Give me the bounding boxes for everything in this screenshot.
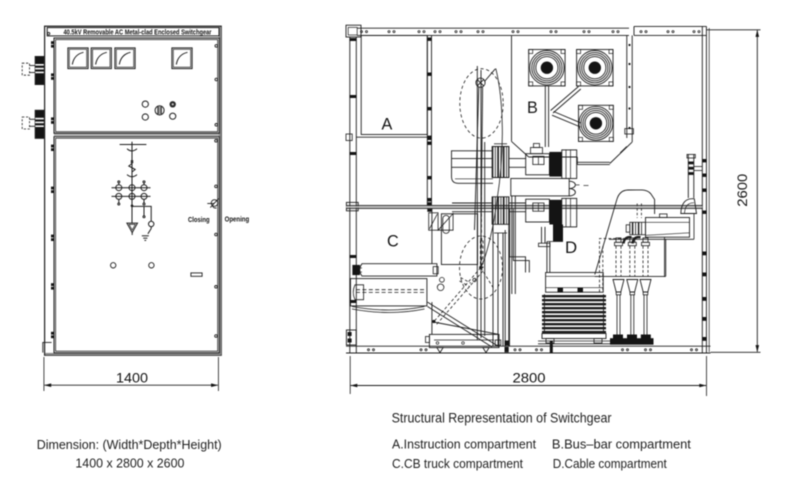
svg-text:C.CB truck compartment: C.CB truck compartment bbox=[392, 456, 523, 471]
svg-text:C: C bbox=[387, 233, 399, 251]
svg-text:D.Cable compartment: D.Cable compartment bbox=[553, 456, 667, 471]
svg-text:1400: 1400 bbox=[116, 370, 148, 386]
svg-text:B: B bbox=[527, 99, 538, 117]
svg-text:1400 x 2800 x 2600: 1400 x 2800 x 2600 bbox=[75, 456, 184, 471]
svg-text:2600: 2600 bbox=[735, 174, 751, 207]
svg-text:A.Instruction compartment: A.Instruction compartment bbox=[392, 437, 536, 452]
svg-text:B.Bus–bar compartment: B.Bus–bar compartment bbox=[552, 437, 691, 452]
svg-text:40.5kV Removable AC Metal-clad: 40.5kV Removable AC Metal-clad Enclosed … bbox=[64, 29, 212, 36]
svg-text:Dimension: (Width*Depth*Height: Dimension: (Width*Depth*Height) bbox=[37, 437, 222, 452]
svg-text:Structural Representation of S: Structural Representation of Switchgear bbox=[392, 410, 612, 425]
svg-text:D: D bbox=[565, 238, 577, 257]
svg-text:A: A bbox=[382, 115, 393, 133]
svg-text:Opening: Opening bbox=[225, 215, 250, 224]
svg-text:Closing: Closing bbox=[188, 215, 210, 224]
svg-text:2800: 2800 bbox=[513, 371, 546, 387]
